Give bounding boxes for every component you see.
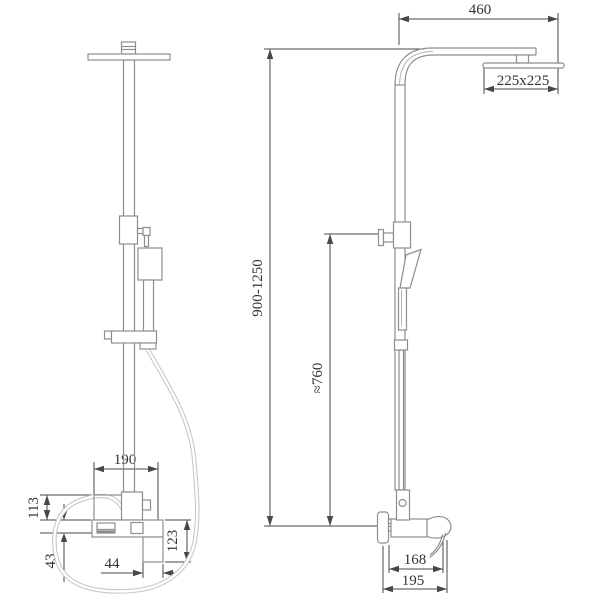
side-view [378,48,565,558]
hose-side [399,350,404,490]
slider-lever-stem [145,236,149,247]
escutcheon [378,512,389,543]
mixer-body-side [391,519,427,537]
knob-stem [384,233,394,242]
slider-ring [395,340,408,350]
dim-column-height-label: 900-1250 [250,259,266,317]
bracket-body-side [394,222,411,248]
holder-tab [105,331,112,339]
hand-shower-head-side [400,250,421,289]
riser-pipe-side [395,48,536,490]
shower-hose [54,350,197,591]
dim-head-size-label: 225x225 [497,73,550,89]
overhead-shower-side [483,55,564,68]
shower-technical-drawing: 460 225x225 900-1250 ≈760 [0,0,606,600]
hand-shower-head [138,248,162,280]
mixer-faucet-front [92,492,163,562]
holder-bar [112,331,157,343]
dim-upper-height-label: 113 [26,497,42,519]
dim-head-size: 225x225 [484,68,558,94]
slider-bracket-front [120,216,151,247]
slider-bracket-side [379,222,411,248]
shower-head-side [483,63,564,68]
dim-spout-to-handle-label: 190 [114,452,137,468]
handle-nut [140,343,156,349]
dim-spout-tip-reach-label: 168 [404,552,427,568]
dim-arm-reach-label: 460 [469,2,492,18]
dim-outlet-offset-label: 44 [105,556,121,572]
dim-lower-height: 43 [40,504,96,582]
head-connector-side [517,55,529,63]
hose-connector-block [397,490,410,520]
dim-drop-length: 123 [165,520,191,562]
head-connector [122,42,136,54]
dim-hose-drop-label: ≈760 [310,363,326,394]
hand-shower-side [395,250,422,491]
overhead-shower-front [88,42,170,60]
dimension-annotations: 460 225x225 900-1250 ≈760 [26,2,558,593]
slider-lever-block [143,228,150,236]
spout-side [427,517,451,539]
dim-column-height: 900-1250 [250,49,424,526]
hand-shower-handle-side [399,288,407,330]
dim-hose-drop: ≈760 [310,234,378,526]
dim-spout-tip-reach: 168 [389,541,443,573]
riser-pipe-front [124,60,135,492]
down-outlet [143,537,163,562]
knob-flange [379,230,384,246]
mixer-upper-body [122,492,143,520]
dim-spout-total-reach-label: 195 [402,573,425,589]
hand-shower-front [105,248,163,349]
dim-drop-length-label: 123 [165,530,181,553]
hand-shower-handle [144,280,154,331]
diverter-knob [131,523,143,534]
shower-head-bar [88,54,170,60]
front-view [54,42,197,591]
mixer-handle-knob [143,500,151,510]
